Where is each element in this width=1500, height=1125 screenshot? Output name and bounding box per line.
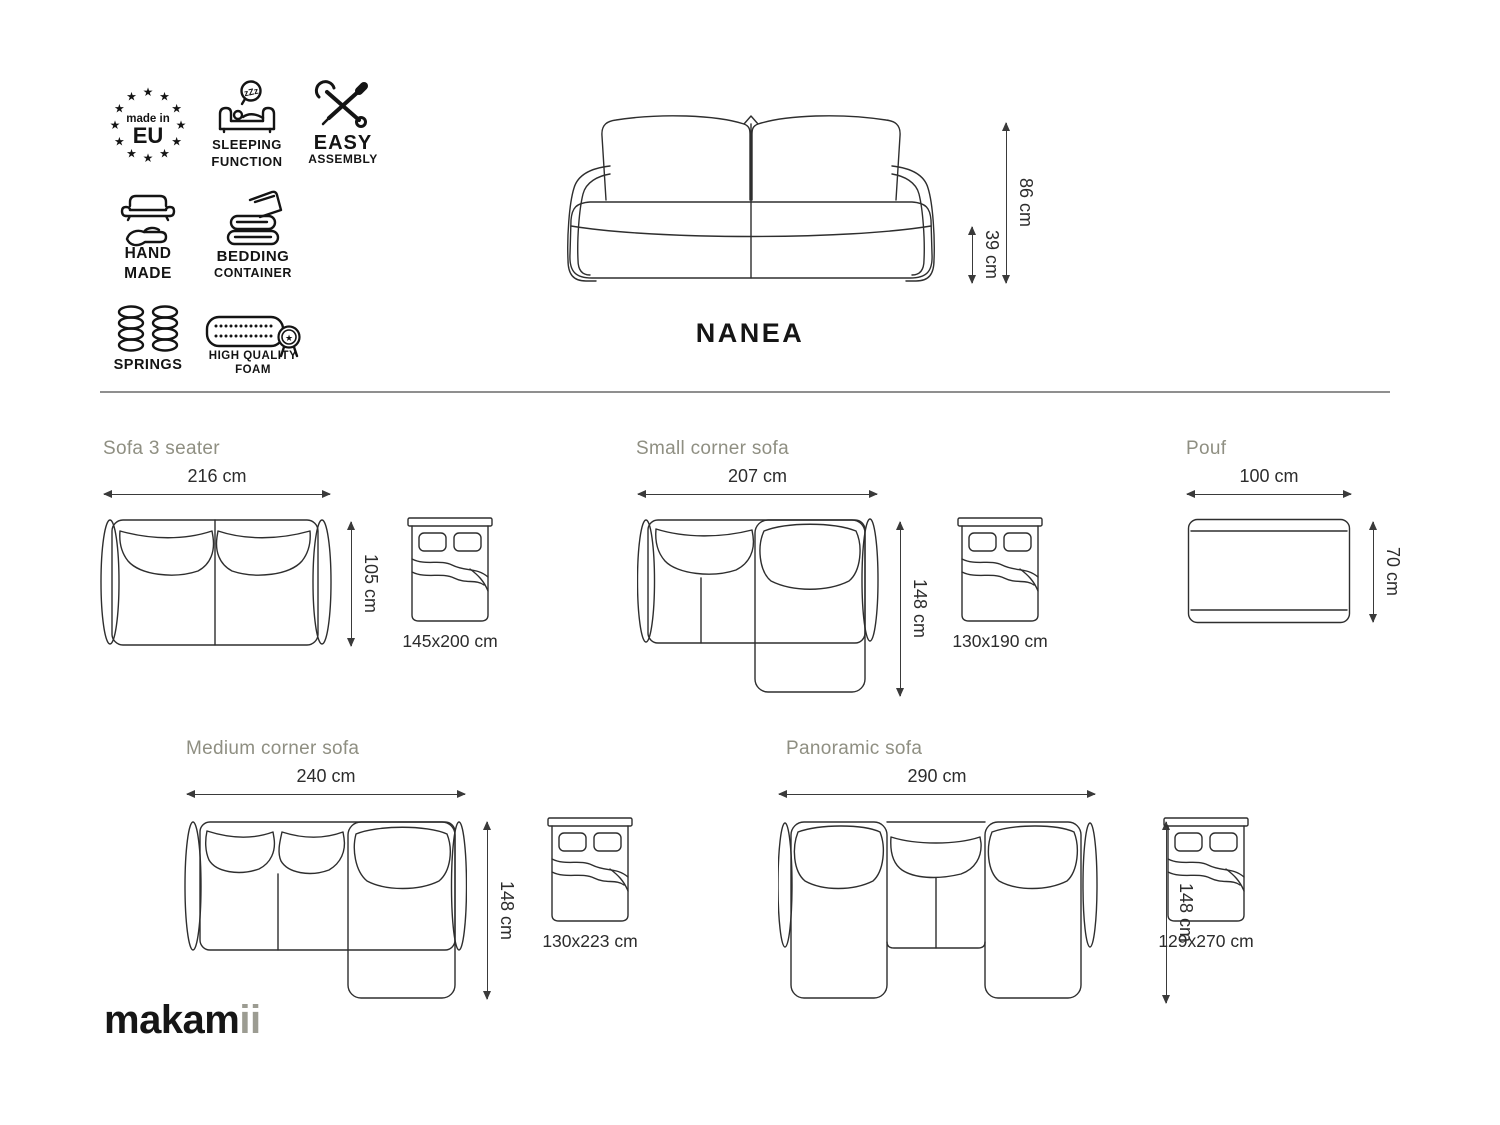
total-height-arrow	[1006, 123, 1007, 283]
width-arrow	[187, 794, 465, 795]
depth-label: 148 cm	[906, 522, 930, 696]
variant-title-medium-corner: Medium corner sofa	[186, 738, 359, 760]
assembly-label: ASSEMBLY	[302, 152, 384, 168]
depth-arrow	[351, 522, 352, 646]
svg-text:★: ★	[159, 147, 170, 161]
seat-height-label: 39 cm	[978, 227, 1002, 283]
medium-corner-sofa-top-view	[182, 816, 467, 1004]
svg-text:★: ★	[110, 118, 121, 132]
svg-text:★: ★	[171, 102, 182, 116]
eu-label: EU	[133, 123, 164, 148]
easy-assembly-icon	[314, 80, 372, 128]
variant-title-small-corner: Small corner sofa	[636, 438, 789, 460]
variant-title-panoramic: Panoramic sofa	[786, 738, 922, 760]
panoramic-sofa-top-view	[778, 816, 1098, 1023]
svg-text:★: ★	[114, 102, 125, 116]
hand-made-icon	[115, 188, 181, 248]
width-arrow	[779, 794, 1095, 795]
product-sheet: ★★ ★★ ★★ ★★ ★★ ★★ made in EU zZz SLEEPIN…	[0, 0, 1500, 1125]
made-in-eu-icon: ★★ ★★ ★★ ★★ ★★ ★★ made in EU	[108, 85, 188, 165]
brand-logo: makamii	[104, 1000, 261, 1040]
total-height-label: 86 cm	[1012, 123, 1036, 283]
bed-size-label: 129x270 cm	[1148, 931, 1264, 952]
width-label: 207 cm	[638, 466, 877, 487]
sofa-front-view-drawing	[556, 104, 946, 286]
bedding-container-icon	[222, 186, 284, 250]
springs-label: SPRINGS	[98, 356, 198, 375]
divider	[100, 391, 1390, 393]
width-label: 216 cm	[104, 466, 330, 487]
springs-icon	[116, 305, 180, 353]
depth-label: 105 cm	[357, 522, 381, 646]
sleeping-function-label: SLEEPING FUNCTION	[197, 137, 297, 171]
container-label: CONTAINER	[197, 265, 309, 281]
svg-text:★: ★	[159, 89, 170, 103]
depth-label: 148 cm	[493, 822, 517, 999]
depth-arrow	[487, 822, 488, 999]
width-label: 240 cm	[187, 766, 465, 787]
bed-size-label: 130x190 cm	[942, 631, 1058, 652]
svg-text:★: ★	[126, 89, 137, 103]
bed-icon	[546, 817, 634, 927]
svg-text:★: ★	[176, 118, 187, 132]
badge-label-line: FUNCTION	[197, 154, 297, 171]
bed-icon	[406, 517, 494, 627]
pouf-top-view	[1187, 518, 1351, 624]
svg-text:★: ★	[126, 147, 137, 161]
depth-arrow	[1373, 522, 1374, 622]
sofa-3-seater-top-view	[100, 516, 335, 648]
seat-height-arrow	[972, 227, 973, 283]
bed-size-label: 145x200 cm	[396, 631, 504, 652]
badge-label-line: SLEEPING	[197, 137, 297, 154]
svg-text:★: ★	[143, 85, 154, 99]
badge-label-line: MADE	[98, 264, 198, 284]
variant-title-sofa-3-seater: Sofa 3 seater	[103, 438, 220, 460]
width-label: 290 cm	[779, 766, 1095, 787]
bed-icon	[956, 517, 1044, 627]
bed-size-label: 130x223 cm	[532, 931, 648, 952]
bedding-label: BEDDING	[197, 247, 309, 267]
bed-icon	[1162, 817, 1250, 927]
sleeping-function-icon: zZz	[212, 80, 282, 134]
page-title: NANEA	[600, 318, 900, 349]
svg-text:★: ★	[171, 135, 182, 149]
svg-text:★: ★	[114, 135, 125, 149]
svg-text:★: ★	[143, 151, 154, 165]
variant-title-pouf: Pouf	[1186, 438, 1226, 460]
high-quality-label: HIGH QUALITY	[197, 349, 309, 364]
brand-logo-gray: ii	[239, 998, 260, 1042]
brand-logo-black: makam	[104, 998, 239, 1042]
width-arrow	[638, 494, 877, 495]
width-arrow	[104, 494, 330, 495]
depth-label: 70 cm	[1379, 522, 1403, 622]
badge-label-line: HAND	[98, 244, 198, 264]
foam-label: FOAM	[197, 363, 309, 378]
small-corner-sofa-top-view	[637, 516, 879, 698]
width-label: 100 cm	[1187, 466, 1351, 487]
hand-made-label: HAND MADE	[98, 244, 198, 284]
width-arrow	[1187, 494, 1351, 495]
depth-arrow	[900, 522, 901, 696]
svg-text:★: ★	[285, 333, 293, 343]
